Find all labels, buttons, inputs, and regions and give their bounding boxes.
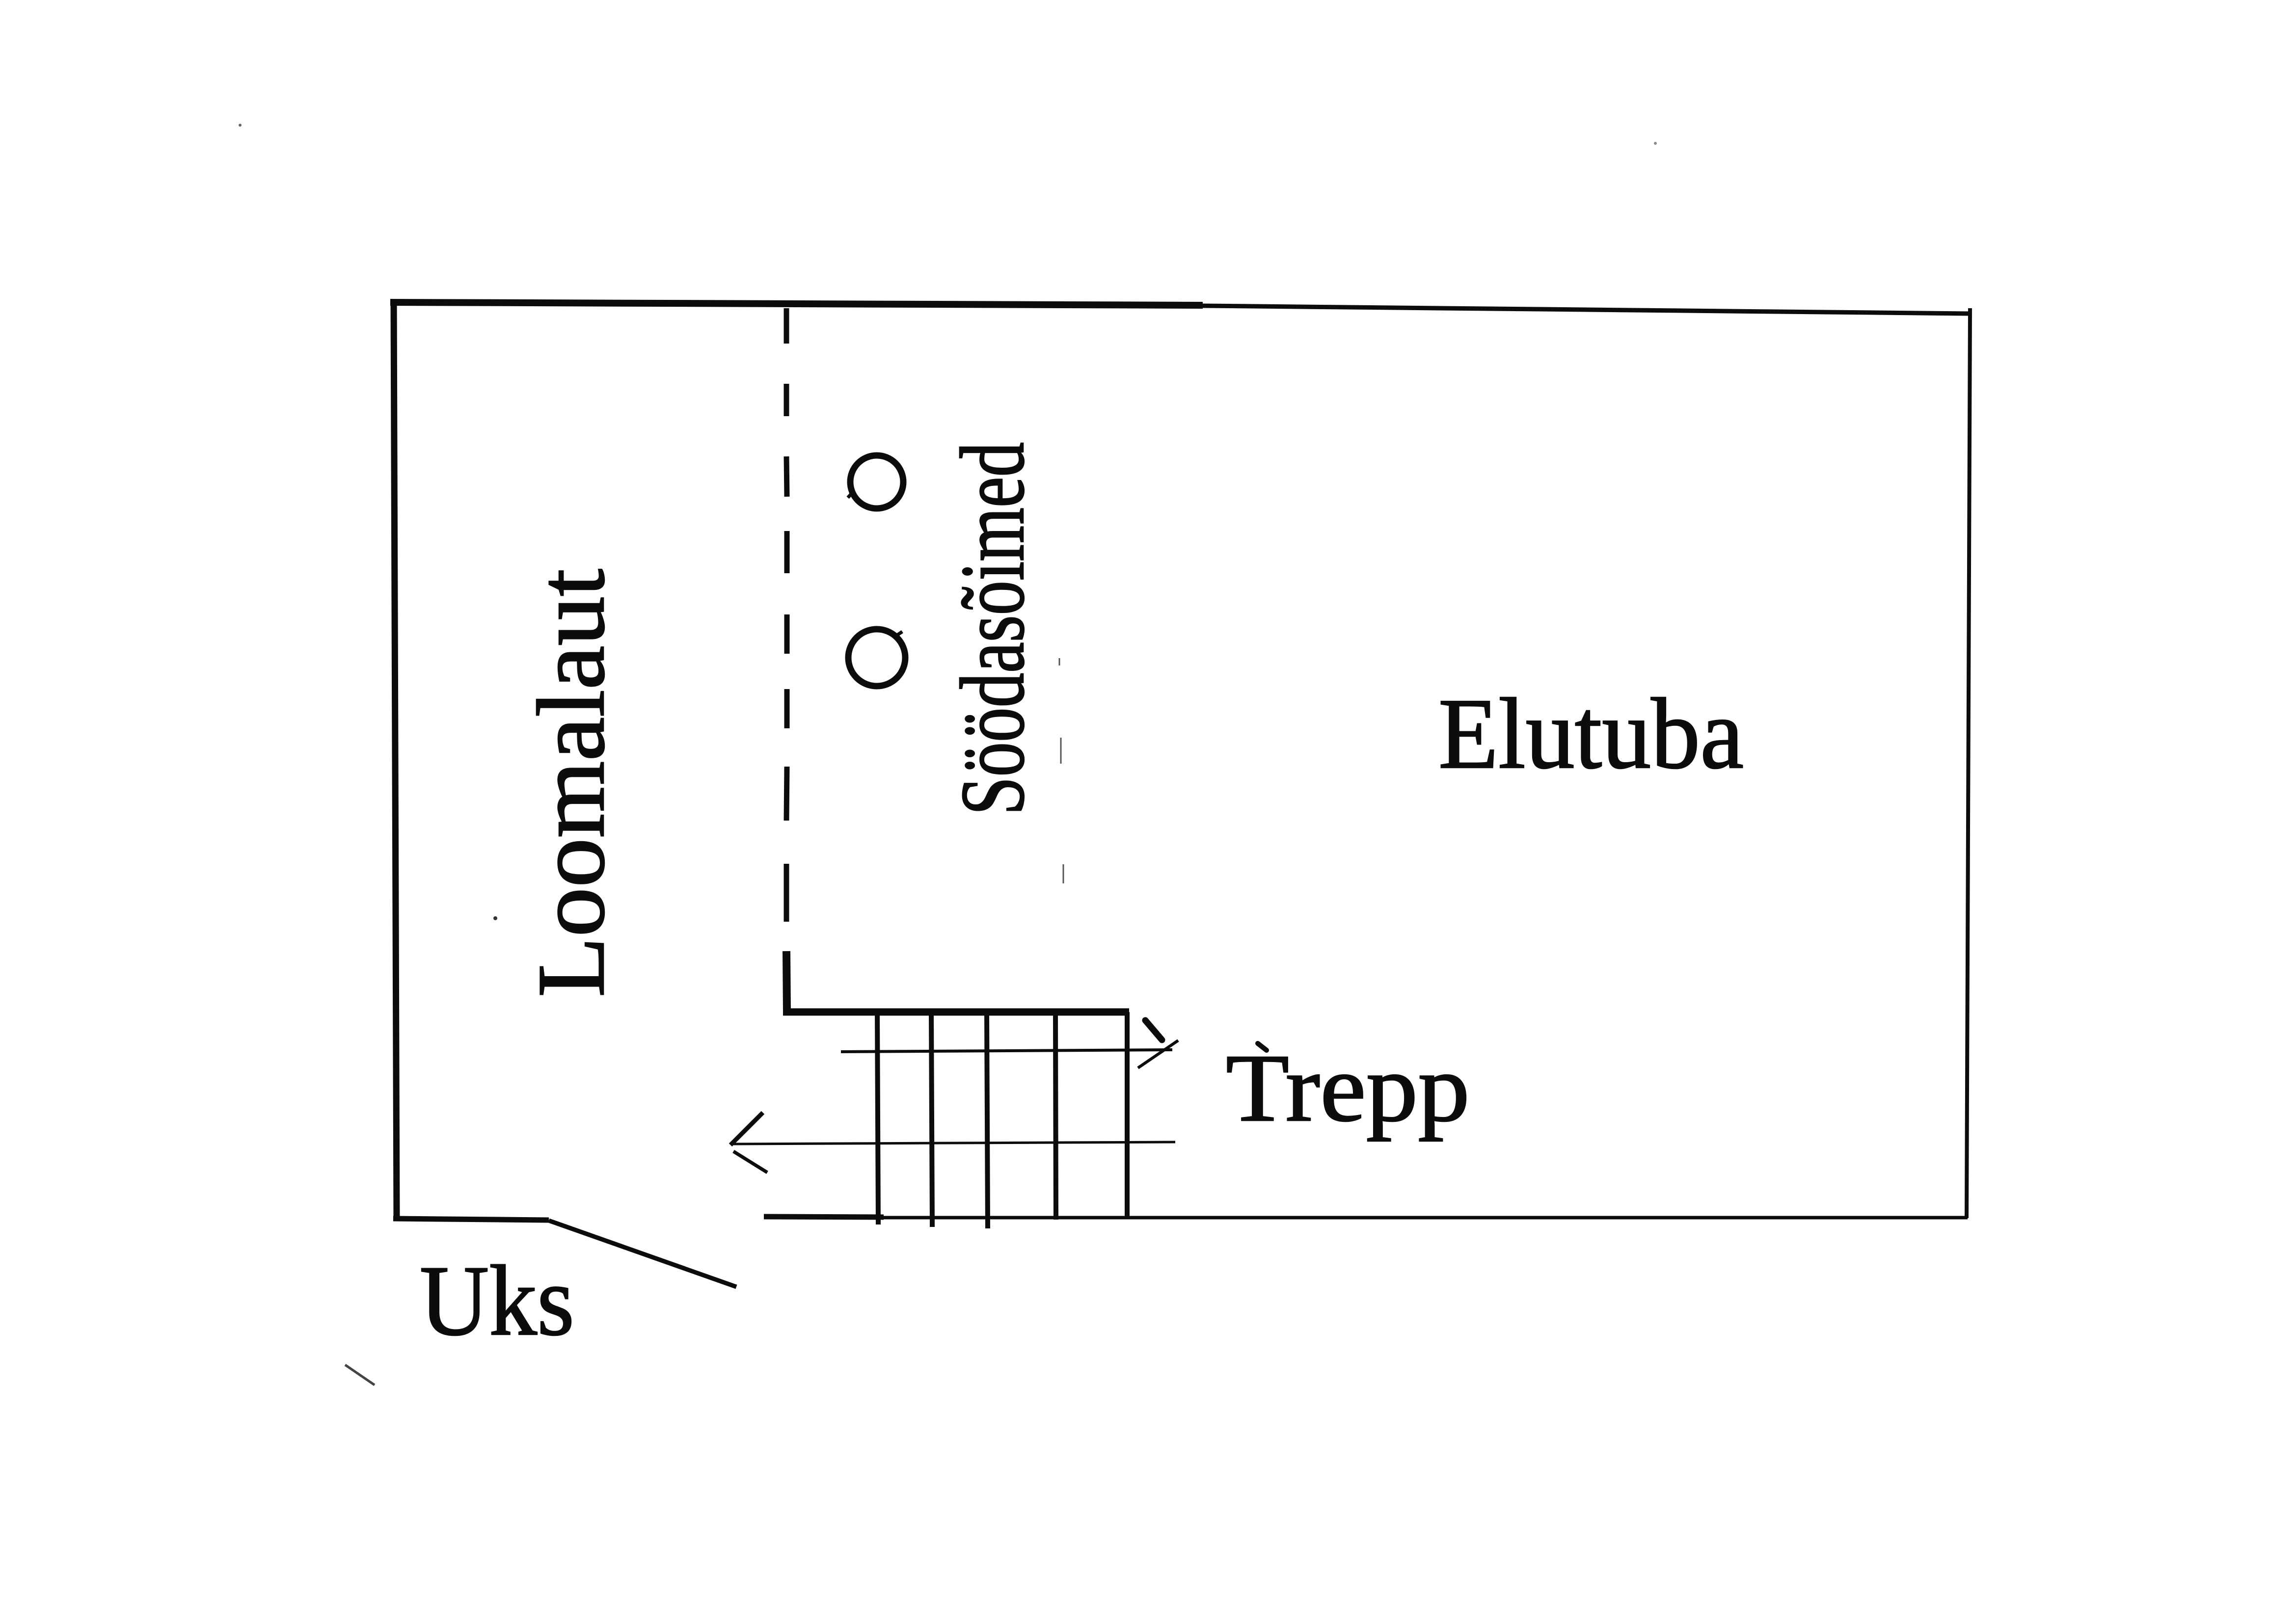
svg-text:Trepp: Trepp — [1226, 1034, 1470, 1142]
svg-text:Uks: Uks — [420, 1245, 574, 1357]
svg-text:Elutuba: Elutuba — [1438, 677, 1744, 790]
svg-text:Loomalaut: Loomalaut — [518, 569, 624, 997]
svg-text:Söödasõimed: Söödasõimed — [942, 442, 1043, 815]
